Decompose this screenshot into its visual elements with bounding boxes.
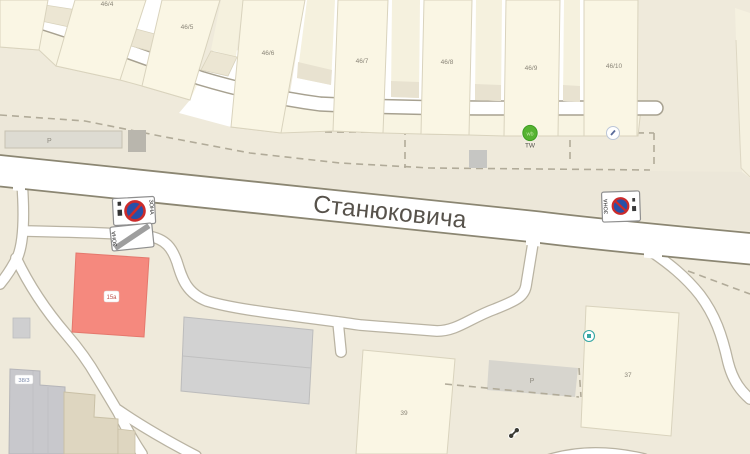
- svg-text:15а: 15а: [106, 295, 117, 301]
- svg-text:39: 39: [400, 410, 408, 417]
- svg-text:46/6: 46/6: [262, 50, 275, 57]
- svg-text:37: 37: [624, 372, 632, 379]
- svg-text:46/4: 46/4: [101, 1, 114, 8]
- svg-text:46/7: 46/7: [356, 58, 369, 65]
- svg-text:TW: TW: [525, 143, 536, 150]
- svg-text:wb: wb: [525, 132, 533, 138]
- svg-text:P: P: [530, 378, 535, 385]
- svg-text:ЗОНА: ЗОНА: [147, 199, 154, 215]
- svg-text:ЗОНА: ЗОНА: [603, 198, 610, 214]
- svg-text:46/10: 46/10: [606, 63, 623, 70]
- svg-text:46/8: 46/8: [441, 59, 454, 66]
- svg-text:46/5: 46/5: [181, 24, 194, 31]
- svg-text:38/3: 38/3: [18, 378, 29, 384]
- svg-text:46/9: 46/9: [525, 65, 538, 72]
- svg-text:P: P: [47, 138, 52, 145]
